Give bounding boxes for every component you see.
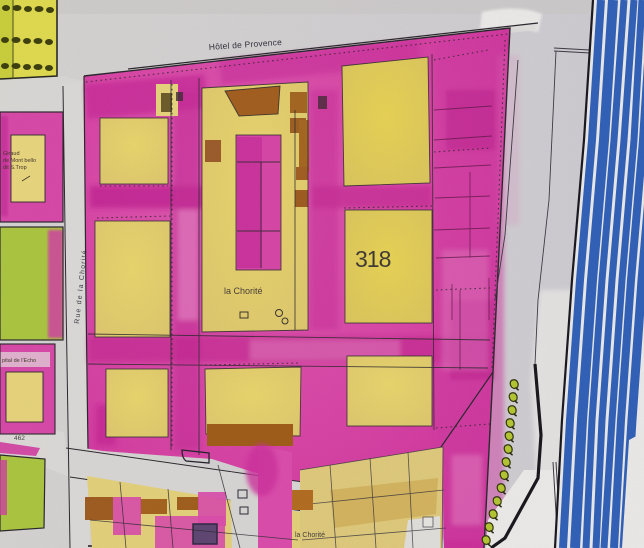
svg-text:la Chorité: la Chorité — [224, 286, 263, 296]
svg-text:318: 318 — [355, 246, 391, 272]
svg-text:la Chorité: la Chorité — [295, 532, 325, 539]
